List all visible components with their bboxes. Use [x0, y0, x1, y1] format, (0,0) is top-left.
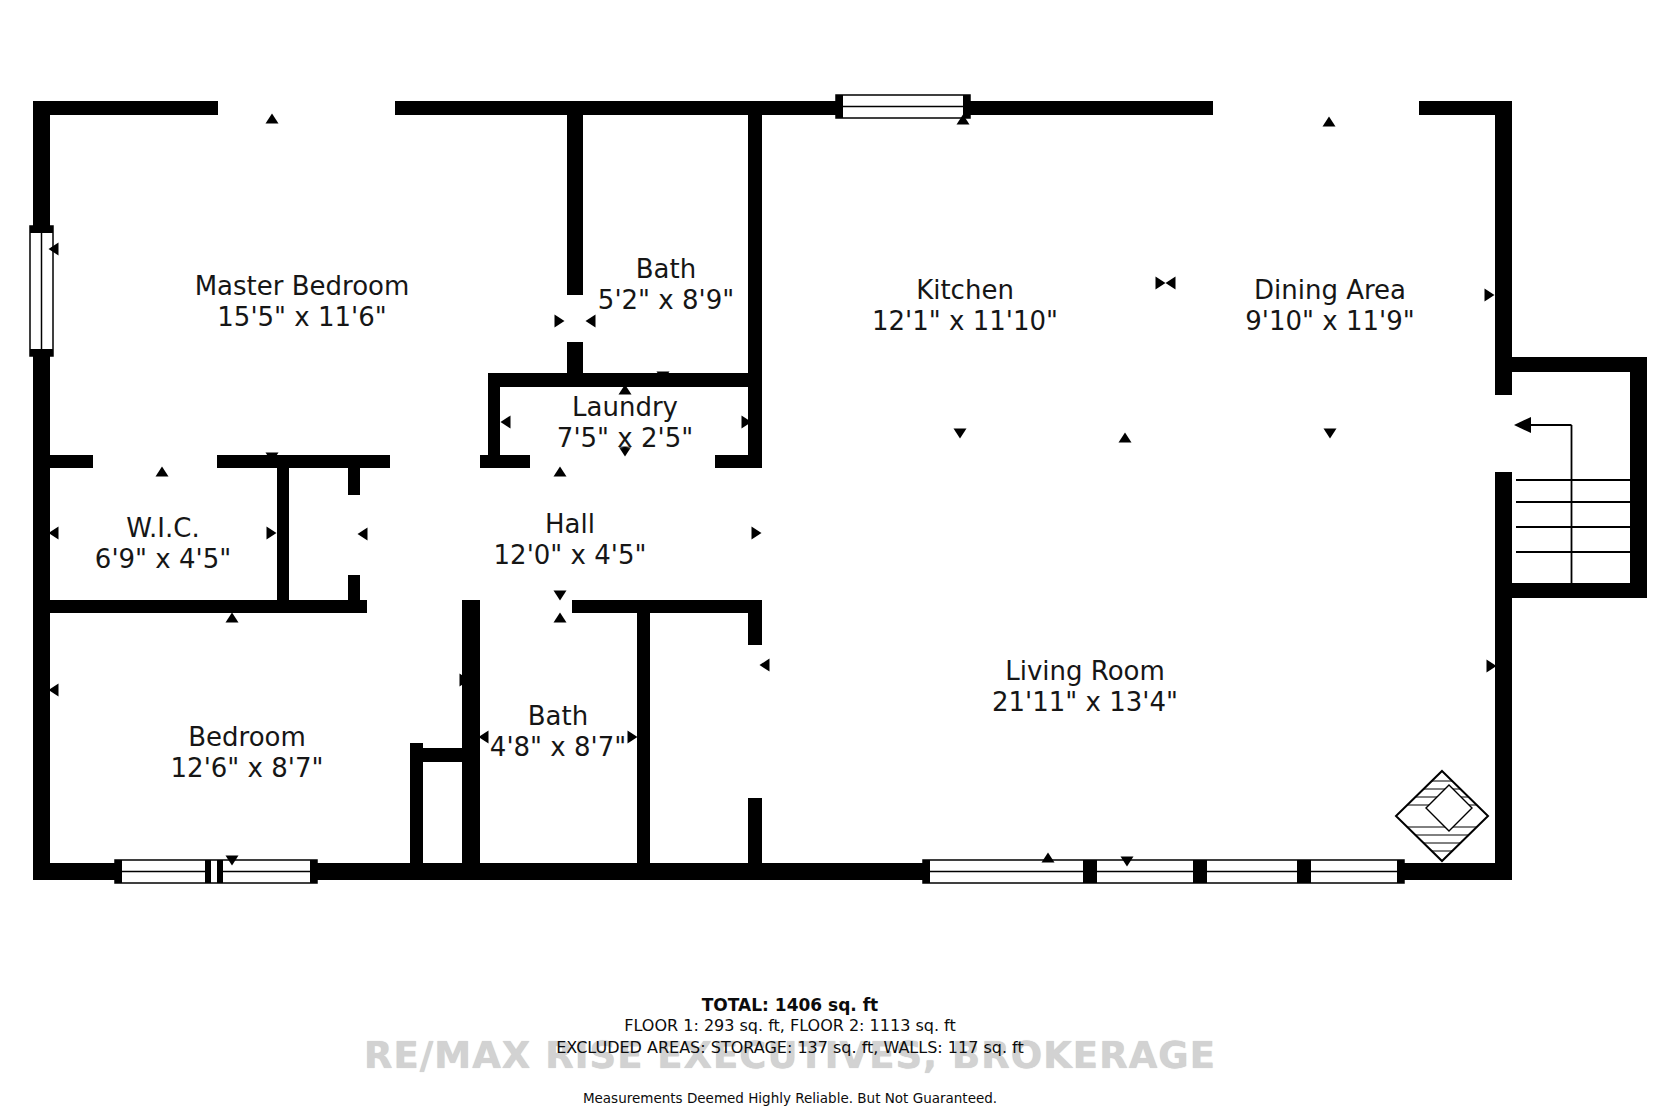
- room-name: Hall: [494, 509, 647, 540]
- room-label-bath-upper: Bath 5'2" x 8'9": [598, 254, 734, 316]
- room-label-hall: Hall 12'0" x 4'5": [494, 509, 647, 571]
- window-icon: [115, 860, 317, 883]
- room-dims: 9'10" x 11'9": [1245, 306, 1414, 337]
- room-name: Master Bedroom: [195, 271, 410, 302]
- excluded-areas-text: EXCLUDED AREAS: STORAGE: 137 sq. ft, WAL…: [556, 1038, 1023, 1058]
- room-dims: 4'8" x 8'7": [490, 732, 626, 763]
- room-name: Laundry: [557, 392, 693, 423]
- room-dims: 12'1" x 11'10": [872, 306, 1058, 337]
- window-icon: [30, 226, 53, 356]
- room-name: Bath: [490, 701, 626, 732]
- room-name: W.I.C.: [95, 513, 231, 544]
- room-dims: 15'5" x 11'6": [195, 302, 410, 333]
- floor-areas-text: FLOOR 1: 293 sq. ft, FLOOR 2: 1113 sq. f…: [624, 1016, 955, 1036]
- room-dims: 12'6" x 8'7": [171, 753, 324, 784]
- window-icon: [923, 860, 1404, 883]
- room-name: Kitchen: [872, 275, 1058, 306]
- room-dims: 5'2" x 8'9": [598, 285, 734, 316]
- room-dims: 7'5" x 2'5": [557, 423, 693, 454]
- room-name: Bath: [598, 254, 734, 285]
- room-dims: 6'9" x 4'5": [95, 544, 231, 575]
- compass-icon: [1396, 771, 1488, 861]
- room-label-living-room: Living Room 21'11" x 13'4": [992, 656, 1178, 718]
- room-label-bath-lower: Bath 4'8" x 8'7": [490, 701, 626, 763]
- total-area-text: TOTAL: 1406 sq. ft: [702, 995, 878, 1015]
- floor-plan-page: Master Bedroom 15'5" x 11'6" Bath 5'2" x…: [0, 0, 1680, 1120]
- room-dims: 21'11" x 13'4": [992, 687, 1178, 718]
- window-icon: [836, 95, 970, 118]
- room-name: Dining Area: [1245, 275, 1414, 306]
- room-dims: 12'0" x 4'5": [494, 540, 647, 571]
- room-label-master-bedroom: Master Bedroom 15'5" x 11'6": [195, 271, 410, 333]
- room-label-laundry: Laundry 7'5" x 2'5": [557, 392, 693, 454]
- stairs-icon: [1514, 417, 1630, 583]
- disclaimer-text: Measurements Deemed Highly Reliable. But…: [583, 1090, 997, 1106]
- room-label-dining-area: Dining Area 9'10" x 11'9": [1245, 275, 1414, 337]
- room-name: Living Room: [992, 656, 1178, 687]
- stairs-direction-arrow: [1514, 417, 1531, 433]
- room-name: Bedroom: [171, 722, 324, 753]
- room-label-kitchen: Kitchen 12'1" x 11'10": [872, 275, 1058, 337]
- room-label-bedroom: Bedroom 12'6" x 8'7": [171, 722, 324, 784]
- floor-plan-drawing: [0, 0, 1680, 1120]
- room-label-wic: W.I.C. 6'9" x 4'5": [95, 513, 231, 575]
